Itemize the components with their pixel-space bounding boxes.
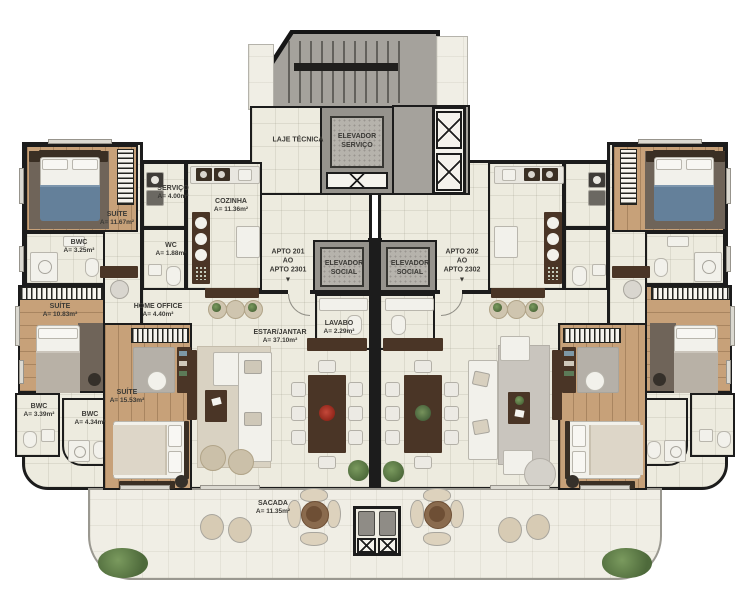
pouf bbox=[200, 445, 226, 471]
coffee-table bbox=[205, 390, 227, 422]
rattan-chair bbox=[498, 517, 522, 543]
sofa-cushion bbox=[472, 370, 491, 387]
window bbox=[730, 306, 735, 346]
dining-chair bbox=[348, 430, 363, 445]
table-paper bbox=[211, 397, 221, 406]
dining-chair bbox=[385, 430, 400, 445]
office-chair bbox=[110, 280, 129, 299]
tv-panel bbox=[552, 350, 562, 420]
core-xbox bbox=[436, 153, 462, 191]
window bbox=[15, 306, 20, 346]
round-table-top bbox=[306, 506, 322, 522]
shelf-unit bbox=[562, 347, 576, 393]
dining-chair bbox=[318, 456, 336, 469]
rattan-chair bbox=[526, 514, 550, 540]
pouf bbox=[88, 373, 101, 386]
room-servico: SERVIÇOA= 4.00m² bbox=[142, 162, 186, 228]
window bbox=[726, 168, 731, 204]
label-elevador-servico: ELEVADORSERVIÇO bbox=[338, 132, 376, 150]
label-bwc-bottom: BWCA= 4.34m² bbox=[75, 410, 106, 428]
toilet bbox=[85, 258, 99, 277]
dining-chair bbox=[318, 360, 336, 373]
island-dots bbox=[195, 266, 207, 280]
sink bbox=[699, 429, 713, 442]
floor-plan: SACADAA= 11.35m² LAJE TÉCNICA ELEVADORSE… bbox=[0, 0, 750, 600]
bar-counter bbox=[205, 288, 259, 298]
elevator-pit-hatch bbox=[326, 172, 388, 189]
label-wc: WCA= 1.88m² bbox=[156, 241, 187, 259]
dining-chair bbox=[291, 406, 306, 421]
toilet bbox=[717, 431, 731, 448]
table-chair bbox=[423, 532, 451, 546]
home-office-desk bbox=[612, 266, 650, 278]
dining-chair bbox=[348, 406, 363, 421]
label-bwc-top: BWCA= 3.25m² bbox=[64, 238, 95, 256]
room-bwc-top-right bbox=[645, 232, 725, 285]
island-plate bbox=[195, 249, 207, 261]
sink bbox=[41, 429, 55, 442]
core-shaft bbox=[432, 106, 466, 195]
bed-blanket bbox=[113, 425, 167, 475]
table-chair bbox=[450, 500, 464, 528]
room-elevador-servico: ELEVADORSERVIÇO bbox=[320, 106, 394, 195]
home-office-desk bbox=[100, 266, 138, 278]
table-chair bbox=[327, 500, 341, 528]
label-suite-top-left: SUÍTEA= 11.67m² bbox=[100, 210, 134, 228]
washer-door bbox=[593, 176, 601, 184]
stair-rail bbox=[294, 63, 398, 71]
toilet bbox=[23, 431, 37, 448]
pouf bbox=[653, 373, 666, 386]
label-home-office: HOME OFFICEA= 4.40m² bbox=[134, 302, 183, 320]
dining-chair bbox=[291, 382, 306, 397]
label-lavabo: LAVABOA= 2.29m² bbox=[324, 319, 355, 337]
room-cozinha-right bbox=[488, 162, 564, 290]
window bbox=[638, 139, 702, 144]
burner bbox=[546, 171, 553, 178]
burner bbox=[528, 171, 535, 178]
room-suite-mid-left: SUÍTEA= 10.83m² bbox=[18, 285, 105, 393]
shaft-xbox bbox=[378, 538, 397, 553]
label-cozinha: COZINHAA= 11.36m² bbox=[214, 197, 248, 215]
label-bwc-mid: BWCA= 3.39m² bbox=[24, 402, 55, 420]
stool-plant bbox=[248, 303, 257, 312]
sliding-door bbox=[200, 485, 260, 490]
bed-blanket-blue bbox=[40, 185, 100, 221]
dining-chair bbox=[385, 382, 400, 397]
bed-pillow bbox=[686, 159, 712, 170]
bar-stool bbox=[226, 300, 245, 319]
burner bbox=[200, 171, 207, 178]
table-chair bbox=[410, 500, 424, 528]
window bbox=[19, 246, 24, 272]
room-wc-right bbox=[564, 228, 608, 290]
bed-pillow bbox=[676, 328, 716, 339]
room-elevador-social-right: ELEVADORSOCIAL bbox=[379, 240, 437, 294]
bed-headboard bbox=[565, 421, 570, 479]
room-suite-bottom-left: SUÍTEA= 15.53m² bbox=[103, 323, 192, 490]
desk-chair bbox=[585, 371, 605, 391]
shower-drain bbox=[670, 446, 682, 458]
kitchen-sink bbox=[238, 169, 252, 181]
label-servico: SERVIÇOA= 4.00m² bbox=[157, 184, 188, 202]
stair-core bbox=[272, 34, 436, 109]
down-arrow-icon: ▼ bbox=[270, 276, 307, 285]
shaft-panel bbox=[379, 511, 396, 536]
sideboard bbox=[383, 338, 443, 351]
washer bbox=[588, 190, 606, 206]
round-table-top bbox=[429, 506, 445, 522]
sliding-door bbox=[490, 485, 550, 490]
table-plant bbox=[515, 396, 524, 405]
bed-pillow bbox=[168, 451, 182, 473]
label-apto-left: APTO 201AO APTO 2301▼ bbox=[270, 247, 307, 284]
core-side-right bbox=[436, 36, 468, 110]
armchair bbox=[500, 336, 530, 361]
window bbox=[120, 485, 170, 490]
bed-pillow bbox=[42, 159, 68, 170]
office-chair bbox=[623, 280, 642, 299]
island-dots bbox=[547, 266, 559, 280]
wardrobe-hatch bbox=[117, 149, 134, 205]
shelf-item bbox=[564, 371, 574, 376]
desk-chair bbox=[147, 371, 167, 391]
room-bwc-top-left: BWCA= 3.25m² bbox=[25, 232, 105, 285]
bed-headboard bbox=[184, 421, 189, 479]
label-elevador-social-left: ELEVADORSOCIAL bbox=[325, 259, 363, 277]
balcony-plant-left bbox=[98, 548, 148, 578]
bed-pillow bbox=[72, 159, 98, 170]
kitchen-island bbox=[192, 212, 210, 284]
label-elevador-social-right: ELEVADORSOCIAL bbox=[391, 259, 429, 277]
shower-drain bbox=[702, 260, 716, 274]
dining-chair bbox=[291, 430, 306, 445]
island-plate bbox=[547, 249, 559, 261]
stair-treads bbox=[288, 41, 400, 103]
island-plate bbox=[195, 217, 207, 229]
centerpiece-red bbox=[319, 405, 335, 421]
bed-pillow bbox=[656, 159, 682, 170]
shelf-item bbox=[564, 351, 574, 356]
bed-pillow bbox=[38, 328, 78, 339]
party-wall bbox=[371, 294, 379, 490]
bed-blanket-blue bbox=[654, 185, 714, 221]
pouf bbox=[228, 449, 254, 475]
dining-chair bbox=[385, 406, 400, 421]
fridge bbox=[494, 226, 518, 258]
pouf bbox=[175, 475, 188, 488]
label-laje-tecnica: LAJE TÉCNICA bbox=[273, 135, 324, 144]
window bbox=[726, 360, 731, 384]
sink-counter bbox=[319, 298, 368, 311]
dining-chair bbox=[444, 430, 459, 445]
window bbox=[19, 360, 24, 384]
bar-stool bbox=[507, 300, 526, 319]
toilet bbox=[572, 266, 587, 286]
core-side-left bbox=[248, 44, 274, 110]
sink bbox=[667, 236, 689, 247]
island-plate bbox=[195, 233, 207, 245]
room-elevador-social-left: ELEVADORSOCIAL bbox=[313, 240, 371, 294]
kitchen-island bbox=[544, 212, 562, 284]
dining-chair bbox=[414, 456, 432, 469]
shelf-item bbox=[564, 361, 574, 366]
window bbox=[580, 485, 630, 490]
shower-drain bbox=[38, 260, 52, 274]
shower-drain bbox=[74, 446, 86, 458]
fridge bbox=[236, 226, 260, 258]
toilet bbox=[166, 266, 181, 286]
table-paper bbox=[514, 409, 524, 417]
tv-panel bbox=[187, 350, 197, 420]
bed-blanket bbox=[674, 351, 718, 393]
wardrobe-hatch bbox=[620, 149, 637, 205]
room-suite-top-left: SUÍTEA= 11.67m² bbox=[25, 145, 138, 232]
room-wc: WCA= 1.88m² bbox=[142, 228, 186, 290]
room-suite-mid-right bbox=[645, 285, 732, 393]
sideboard bbox=[307, 338, 367, 351]
bar-counter bbox=[491, 288, 545, 298]
shaft-panel bbox=[358, 511, 375, 536]
window bbox=[48, 139, 112, 144]
stool-plant bbox=[529, 303, 538, 312]
dining-chair bbox=[444, 406, 459, 421]
wardrobe-hatch bbox=[563, 328, 621, 343]
sofa-cushion bbox=[244, 412, 262, 426]
down-arrow-icon: ▼ bbox=[444, 276, 481, 285]
island-plate bbox=[547, 217, 559, 229]
room-bwc-mid-left: BWCA= 3.39m² bbox=[15, 393, 60, 457]
toilet bbox=[654, 258, 668, 277]
wardrobe-hatch bbox=[651, 287, 730, 300]
pouf bbox=[566, 475, 579, 488]
rattan-chair bbox=[200, 514, 224, 540]
room-cozinha: COZINHAA= 11.36m² bbox=[186, 162, 262, 290]
window bbox=[726, 246, 731, 272]
bed-blanket bbox=[36, 351, 80, 393]
dining-chair bbox=[414, 360, 432, 373]
room-servico-right bbox=[564, 162, 608, 228]
toilet bbox=[391, 315, 406, 335]
washer-door bbox=[151, 176, 159, 184]
rattan-chair bbox=[228, 517, 252, 543]
coffee-table bbox=[508, 392, 530, 424]
sofa-cushion bbox=[244, 360, 262, 374]
sink bbox=[148, 264, 162, 276]
label-suite-bottom: SUÍTEA= 15.53m² bbox=[110, 388, 145, 406]
sink bbox=[592, 264, 606, 276]
stool-plant bbox=[493, 303, 502, 312]
toilet bbox=[647, 441, 661, 459]
dining-chair bbox=[348, 382, 363, 397]
shaft-xbox bbox=[357, 538, 376, 553]
centerpiece-plant bbox=[415, 405, 431, 421]
table-chair bbox=[423, 488, 451, 502]
window bbox=[19, 168, 24, 204]
room-suite-top-right bbox=[612, 145, 725, 232]
bed-pillow bbox=[572, 425, 586, 447]
burner bbox=[218, 171, 225, 178]
island-plate bbox=[547, 233, 559, 245]
room-bwc-bottom-right bbox=[640, 398, 688, 466]
table-chair bbox=[300, 532, 328, 546]
plant bbox=[348, 460, 369, 481]
room-bwc-mid-right bbox=[690, 393, 735, 457]
stool-plant bbox=[212, 303, 221, 312]
bed-pillow bbox=[572, 451, 586, 473]
label-apto-right: APTO 202AO APTO 2302▼ bbox=[444, 247, 481, 284]
core-xbox bbox=[436, 111, 462, 149]
bed-pillow bbox=[168, 425, 182, 447]
sink-counter bbox=[385, 298, 434, 311]
room-suite-bottom-right bbox=[558, 323, 647, 490]
nightstand bbox=[714, 151, 725, 162]
label-sacada: SACADAA= 11.35m² bbox=[256, 499, 290, 517]
dining-chair bbox=[444, 382, 459, 397]
kitchen-sink bbox=[502, 169, 516, 181]
wardrobe-hatch bbox=[131, 328, 189, 343]
label-suite-mid: SUÍTEA= 10.83m² bbox=[43, 302, 78, 320]
sofa-cushion bbox=[472, 419, 490, 436]
bed-blanket bbox=[589, 425, 643, 475]
table-chair bbox=[300, 488, 328, 502]
label-estar-jantar: ESTAR/JANTARA= 37.10m² bbox=[253, 328, 306, 346]
wardrobe-hatch bbox=[20, 287, 103, 300]
balcony-plant-right bbox=[602, 548, 652, 578]
plant bbox=[383, 461, 404, 482]
